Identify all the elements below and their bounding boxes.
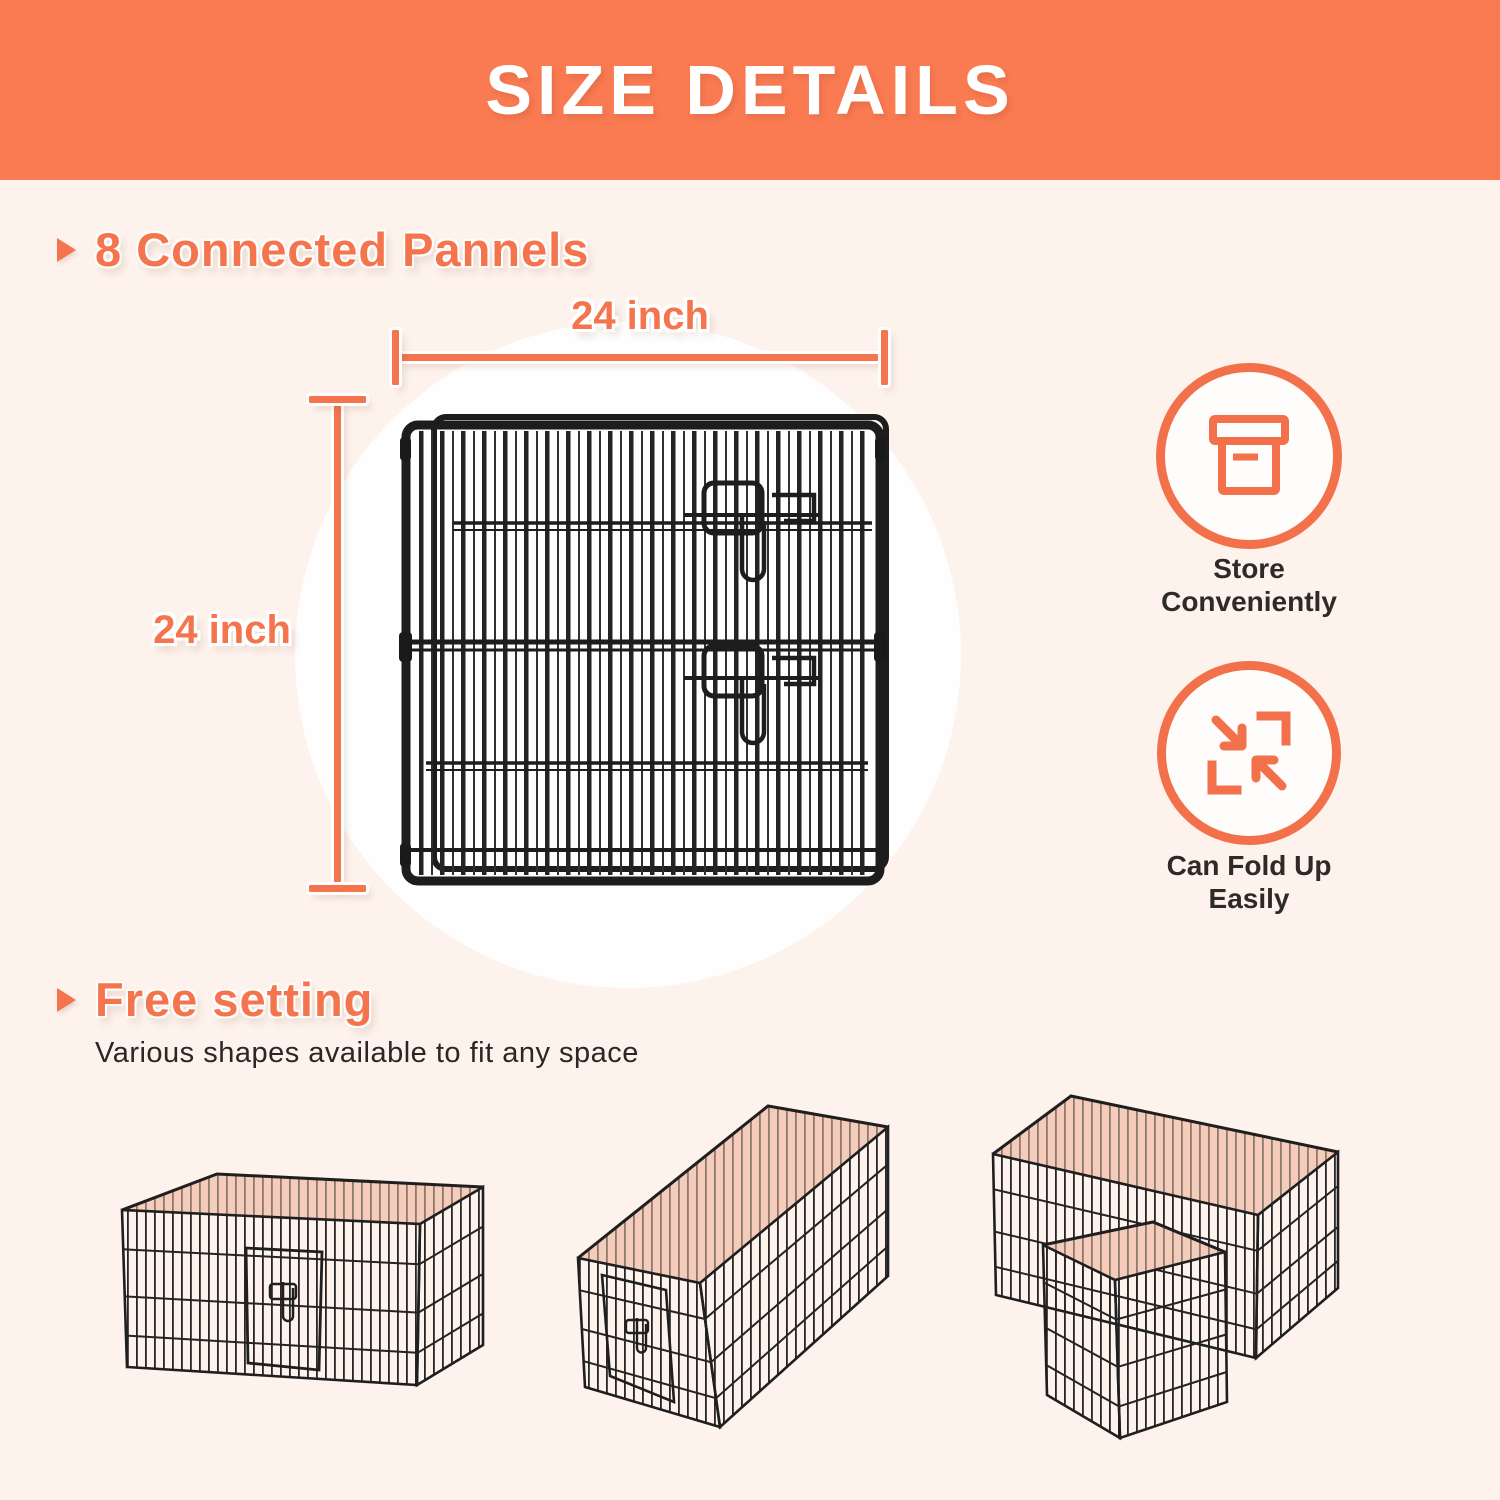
feature-circle-fold	[1157, 661, 1341, 845]
header-banner: SIZE DETAILS	[0, 0, 1500, 180]
panel-photo	[398, 413, 895, 890]
feature-store-line1: Store	[1119, 552, 1379, 585]
infographic-page: SIZE DETAILS 8 Connected Pannels 24 inch…	[0, 0, 1500, 1500]
dimension-height-cap-bottom	[309, 885, 366, 892]
fold-arrows-icon	[1197, 701, 1301, 805]
dimension-width-cap-left	[392, 330, 399, 385]
l-shape-pen-photo	[983, 1090, 1345, 1445]
dimension-width-line	[397, 354, 883, 361]
square-pen-photo	[118, 1162, 490, 1400]
dimension-height-line	[334, 400, 341, 888]
dimension-width-label: 24 inch	[397, 294, 883, 339]
long-rectangle-pen-photo	[570, 1098, 892, 1436]
dimension-height-label: 24 inch	[122, 608, 322, 653]
section-free-heading: Free setting	[95, 972, 373, 1027]
feature-fold-line1: Can Fold Up	[1119, 849, 1379, 882]
feature-caption-store: Store Conveniently	[1119, 552, 1379, 618]
feature-caption-fold: Can Fold Up Easily	[1119, 849, 1379, 915]
triangle-bullet-icon	[57, 238, 76, 262]
feature-circle-store	[1156, 363, 1342, 549]
storage-box-icon	[1197, 404, 1301, 508]
section-free-subtext: Various shapes available to fit any spac…	[95, 1037, 639, 1070]
feature-fold-line2: Easily	[1119, 882, 1379, 915]
triangle-bullet-icon	[57, 988, 76, 1012]
dimension-height-cap-top	[309, 396, 366, 403]
page-title: SIZE DETAILS	[485, 50, 1014, 130]
dimension-width-cap-right	[881, 330, 888, 385]
feature-store-line2: Conveniently	[1119, 585, 1379, 618]
section-panels-heading: 8 Connected Pannels	[95, 222, 589, 277]
